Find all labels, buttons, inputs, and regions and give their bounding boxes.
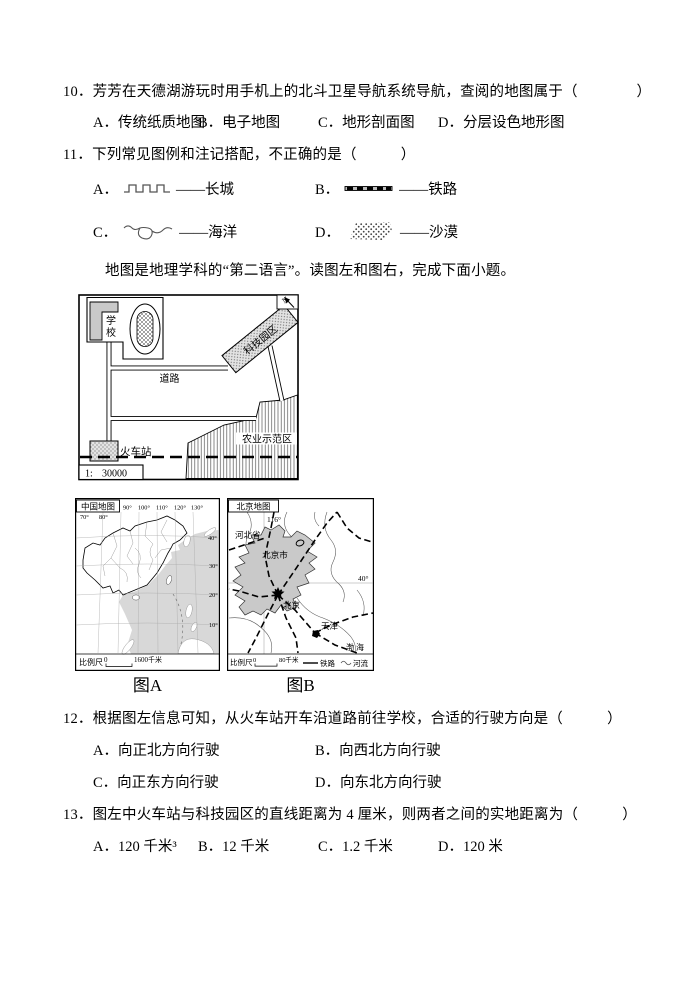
q10-option-c-text: 地形剖面图: [342, 115, 415, 131]
agriculture-zone-label: 农业示范区: [242, 433, 292, 446]
tianjin-label: 天津: [321, 621, 339, 631]
q10-option-b-label: B．: [198, 115, 222, 131]
q10-option-b: B．电子地图: [198, 111, 280, 132]
figure-a-caption: 图A: [75, 671, 220, 696]
q11-option-c-label: C．: [93, 221, 117, 242]
q13-option-d: D．120 米: [438, 835, 503, 856]
q13-option-b-label: B．: [198, 839, 222, 855]
q12-option-a-text: 向正北方向行驶: [118, 743, 220, 759]
q13-option-b-text: 12 千米: [222, 839, 269, 855]
q10-option-c-label: C．: [318, 115, 342, 131]
figure-b-title: 北京地图: [236, 501, 270, 511]
railway-legend-label: 铁路: [320, 658, 335, 668]
q12-option-b-text: 向西北方向行驶: [339, 743, 441, 759]
q10-option-a-text: 传统纸质地图: [118, 115, 205, 131]
road-label: 道路: [160, 372, 180, 385]
q12-option-c-text: 向正东方向行驶: [117, 775, 219, 791]
svg-text:100°: 100°: [138, 505, 150, 512]
q13-option-c: C．1.2 千米: [318, 835, 393, 856]
q10-option-d: D．分层设色地形图: [438, 111, 564, 132]
q10-option-a-label: A．: [93, 115, 118, 131]
question-12-stem: 12．根据图左信息可知，从火车站开车沿道路前往学校，合适的行驶方向是（ ）: [63, 707, 622, 728]
q13-option-c-text: 1.2 千米: [342, 839, 393, 855]
question-11-text: 下列常见图例和注记搭配，不正确的是（ ）: [92, 147, 415, 163]
q11-option-b: B． ——铁路: [315, 175, 457, 201]
river-legend-label: 河流: [353, 658, 368, 668]
q11-option-c-text: ——海洋: [179, 221, 237, 242]
q12-option-c-label: C．: [93, 775, 117, 791]
question-12-text: 根据图左信息可知，从火车站开车沿道路前往学校，合适的行驶方向是（ ）: [93, 711, 622, 727]
svg-text:110°: 110°: [156, 505, 168, 512]
railway-symbol-icon: [344, 184, 394, 193]
figure-a-scale-label: 比例尺: [79, 657, 103, 667]
figure-a-title: 中国地图: [81, 501, 115, 511]
q13-option-a: A．120 千米³: [93, 835, 177, 856]
q10-option-d-label: D．: [438, 115, 463, 131]
q10-option-b-text: 电子地图: [222, 115, 280, 131]
q11-option-d-text: ——沙漠: [400, 221, 458, 242]
beijing-city-label: 北京市: [262, 550, 288, 560]
q11-option-d-label: D．: [315, 221, 340, 242]
svg-text:20°: 20°: [209, 592, 218, 599]
exam-page: 10．芳芳在天德湖游玩时用手机上的北斗卫星导航系统导航，查阅的地图属于（ ） A…: [0, 0, 696, 983]
question-12-number: 12．: [63, 711, 93, 727]
q12-option-d-text: 向东北方向行驶: [340, 775, 442, 791]
figure-b-caption: 图B: [227, 671, 374, 696]
svg-text:130°: 130°: [191, 505, 203, 512]
train-station-label: 火车站: [120, 445, 152, 458]
q12-option-c: C．向正东方向行驶: [93, 771, 219, 792]
figure-b-scale-text: 80千米: [279, 655, 299, 664]
q12-option-a-label: A．: [93, 743, 118, 759]
question-10-number: 10．: [63, 84, 93, 100]
sketch-scale-value: 30000: [102, 469, 127, 480]
figure-a-scale-zero: 0: [104, 656, 108, 664]
great-wall-symbol-icon: [123, 180, 171, 196]
q11-option-b-text: ——铁路: [399, 178, 457, 199]
q11-option-a-label: A．: [93, 178, 118, 199]
question-13-text: 图左中火车站与科技园区的直线距离为 4 厘米，则两者之间的实地距离为（ ）: [93, 807, 637, 823]
svg-text:10°: 10°: [209, 622, 218, 629]
q11-option-d: D． ——沙漠: [315, 218, 458, 244]
q12-option-d-label: D．: [315, 775, 340, 791]
compass: N: [277, 295, 298, 309]
figure-b-lon-label: 116°: [267, 515, 281, 524]
desert-symbol-icon: [345, 218, 395, 244]
q12-option-a: A．向正北方向行驶: [93, 739, 219, 760]
figure-b-scale-label: 比例尺: [230, 657, 253, 667]
q13-option-a-label: A．: [93, 839, 118, 855]
sketch-map: 学 校 科技园区 道路 农业示范区 火车站 N 1: 30000: [78, 294, 299, 484]
bohai-label: 渤 海: [346, 642, 364, 652]
q11-option-c: C． ——海洋: [93, 218, 237, 244]
q10-option-a: A．传统纸质地图: [93, 111, 205, 132]
school-label-char-1: 学: [106, 314, 116, 327]
hebei-label: 河北省: [235, 530, 261, 540]
q11-option-a: A． ——长城: [93, 175, 234, 201]
question-10-stem: 10．芳芳在天德湖游玩时用手机上的北斗卫星导航系统导航，查阅的地图属于（ ）: [63, 80, 651, 101]
question-13-stem: 13．图左中火车站与科技园区的直线距离为 4 厘米，则两者之间的实地距离为（ ）: [63, 803, 637, 824]
q11-option-b-label: B．: [315, 178, 339, 199]
q13-option-c-label: C．: [318, 839, 342, 855]
q13-option-d-label: D．: [438, 839, 463, 855]
figure-a-map: 中国地图 90° 100° 110° 120° 130° 70° 80° 40°…: [75, 498, 220, 671]
svg-text:30°: 30°: [209, 563, 218, 570]
question-11-stem: 11．下列常见图例和注记搭配，不正确的是（ ）: [63, 143, 415, 164]
svg-text:90°: 90°: [123, 505, 132, 512]
figure-b-map: 116° 河北省 北京市 北京 天津 渤 海 40° 北京地图 比例尺 0 80…: [227, 498, 374, 671]
svg-text:80°: 80°: [99, 514, 108, 521]
school-label-char-2: 校: [106, 326, 116, 339]
sketch-scale-prefix: 1:: [85, 469, 93, 480]
q13-option-b: B．12 千米: [198, 835, 269, 856]
question-11-number: 11．: [63, 147, 92, 163]
q11-option-a-text: ——长城: [176, 178, 234, 199]
q12-option-d: D．向东北方向行驶: [315, 771, 441, 792]
question-13-number: 13．: [63, 807, 93, 823]
q13-option-a-text: 120 千米³: [118, 839, 177, 855]
svg-text:70°: 70°: [80, 514, 89, 521]
question-10-text: 芳芳在天德湖游玩时用手机上的北斗卫星导航系统导航，查阅的地图属于（ ）: [93, 84, 652, 100]
svg-text:120°: 120°: [174, 505, 186, 512]
figure-b-lat-label: 40°: [358, 574, 369, 583]
ocean-symbol-icon: [122, 219, 174, 243]
q10-option-d-text: 分层设色地形图: [463, 115, 565, 131]
figure-a-scale-text: 1600千米: [134, 655, 162, 664]
passage-text: 地图是地理学科的“第二语言”。读图左和图右，完成下面小题。: [105, 259, 515, 280]
svg-text:40°: 40°: [208, 535, 217, 542]
q10-option-c: C．地形剖面图: [318, 111, 415, 132]
q12-option-b-label: B．: [315, 743, 339, 759]
figure-b-scale-zero: 0: [253, 657, 256, 664]
beijing-label: 北京: [283, 600, 300, 610]
q12-option-b: B．向西北方向行驶: [315, 739, 441, 760]
q13-option-d-text: 120 米: [463, 839, 503, 855]
school-field: [137, 312, 153, 347]
